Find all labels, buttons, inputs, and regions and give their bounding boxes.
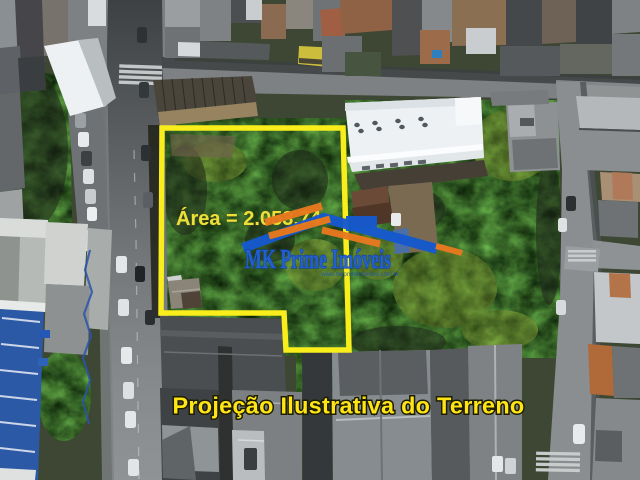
svg-text:Projeção Ilustrativa do Terren: Projeção Ilustrativa do Terreno [172,393,524,419]
svg-text:MK Prime Imóveis: MK Prime Imóveis [245,244,391,274]
svg-text:www.mkprimeimoveis.com.br: www.mkprimeimoveis.com.br [320,272,399,278]
